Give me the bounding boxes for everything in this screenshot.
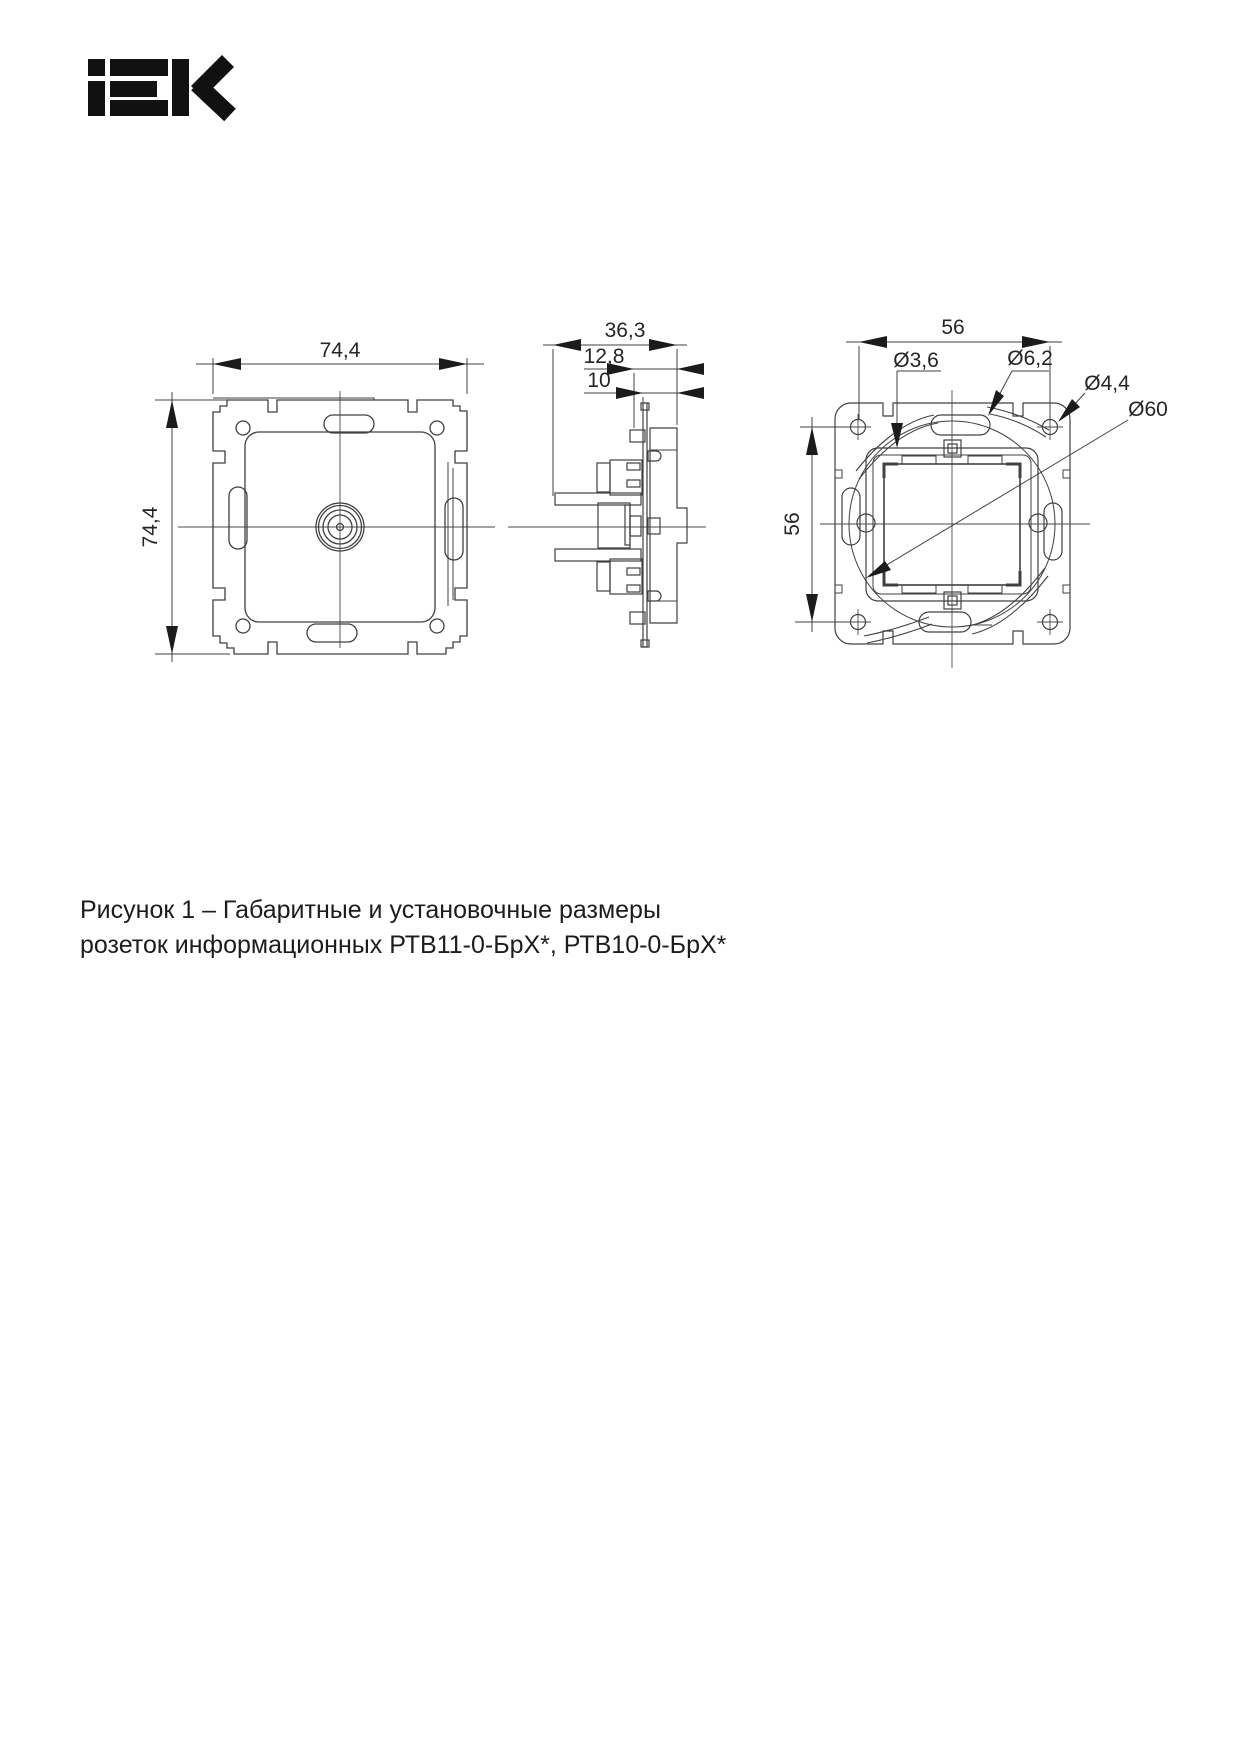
side-mid-label: 12,8: [584, 345, 625, 368]
dia-circle-label: Ø60: [1128, 398, 1168, 421]
back-height-label: 56: [781, 512, 804, 535]
front-width-label: 74,4: [320, 339, 361, 362]
front-centerlines: [178, 391, 495, 648]
back-width-label: 56: [941, 316, 964, 339]
figure-caption-line2: розеток информационных РТВ11-0-БрХ*, РТВ…: [80, 928, 720, 963]
dia-screw-label: Ø3,6: [893, 349, 939, 372]
dia-hole-label: Ø4,4: [1084, 372, 1130, 395]
figure-caption: Рисунок 1 – Габаритные и установочные ра…: [80, 893, 720, 963]
back-plate: [835, 403, 1070, 644]
front-view: [155, 358, 495, 662]
iek-logo: [88, 59, 230, 116]
front-width-dim: [196, 358, 484, 394]
back-dims: [795, 336, 1128, 632]
front-top-slot: [324, 415, 374, 433]
front-bottom-slot: [307, 624, 357, 642]
back-view: [795, 336, 1128, 668]
technical-drawing: 74,4 74,4: [0, 0, 1245, 1747]
side-depth-label: 36,3: [605, 319, 646, 342]
figure-caption-line1: Рисунок 1 – Габаритные и установочные ра…: [80, 893, 720, 928]
datasheet-page: 74,4 74,4: [0, 0, 1245, 1747]
side-front-label: 10: [587, 369, 610, 392]
dia-slot-label: Ø6,2: [1007, 347, 1053, 370]
side-cover: [650, 428, 687, 623]
front-left-kidney: [229, 487, 247, 549]
front-height-label: 74,4: [139, 506, 162, 547]
